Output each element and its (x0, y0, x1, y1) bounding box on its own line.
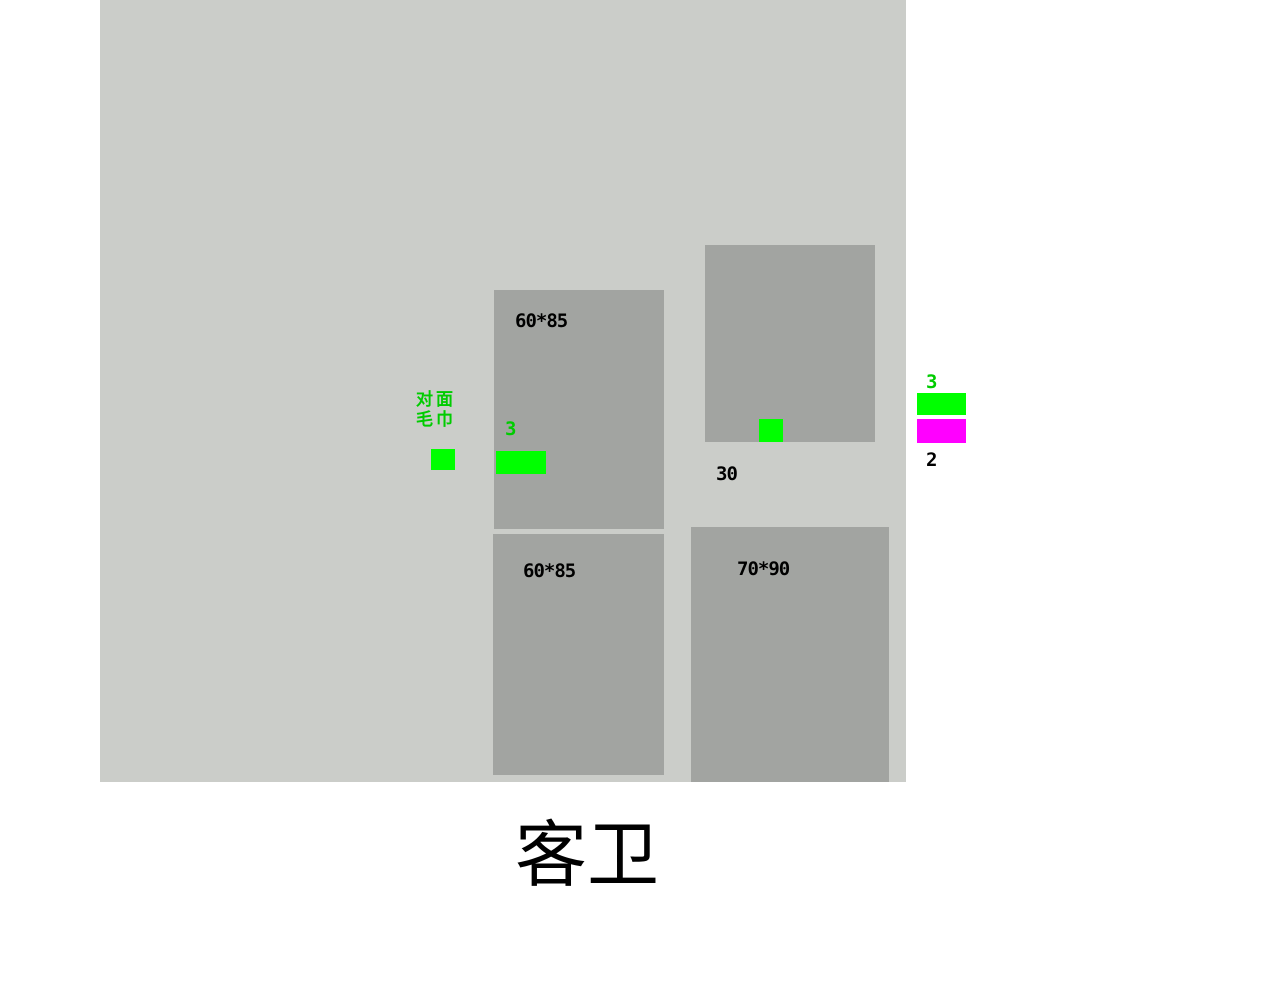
cabinet-size-label: 70*90 (737, 560, 789, 579)
towel-note: 对面 毛巾 (416, 390, 456, 430)
cabinet-box-bottom-right[interactable]: 70*90 (691, 527, 889, 782)
design-page: 60*85 60*85 70*90 对面 毛巾 3 30 3 2 客卫 (0, 0, 1269, 996)
cabinet-box-top-right[interactable] (705, 245, 875, 442)
dimension-label-30: 30 (716, 465, 737, 484)
cabinet-size-label: 60*85 (515, 312, 567, 331)
legend-magenta-quantity: 2 (926, 451, 936, 470)
green-quantity-label: 3 (505, 420, 515, 439)
towel-note-line1: 对面 (416, 390, 456, 410)
cabinet-box-top-left[interactable]: 60*85 (494, 290, 664, 529)
towel-note-line2: 毛巾 (416, 410, 456, 430)
floorplan-canvas[interactable]: 60*85 60*85 70*90 对面 毛巾 3 30 (100, 0, 906, 782)
cabinet-size-label: 60*85 (523, 562, 575, 581)
cabinet-box-bottom-left[interactable]: 60*85 (493, 534, 664, 775)
room-title: 客卫 (515, 817, 659, 896)
green-marker-square-left[interactable] (431, 449, 455, 470)
legend-green-swatch[interactable] (917, 393, 966, 415)
green-marker-square-right[interactable] (759, 419, 783, 442)
legend-green-quantity: 3 (926, 373, 936, 392)
green-marker-bar[interactable] (496, 451, 546, 474)
legend-magenta-swatch[interactable] (917, 419, 966, 443)
